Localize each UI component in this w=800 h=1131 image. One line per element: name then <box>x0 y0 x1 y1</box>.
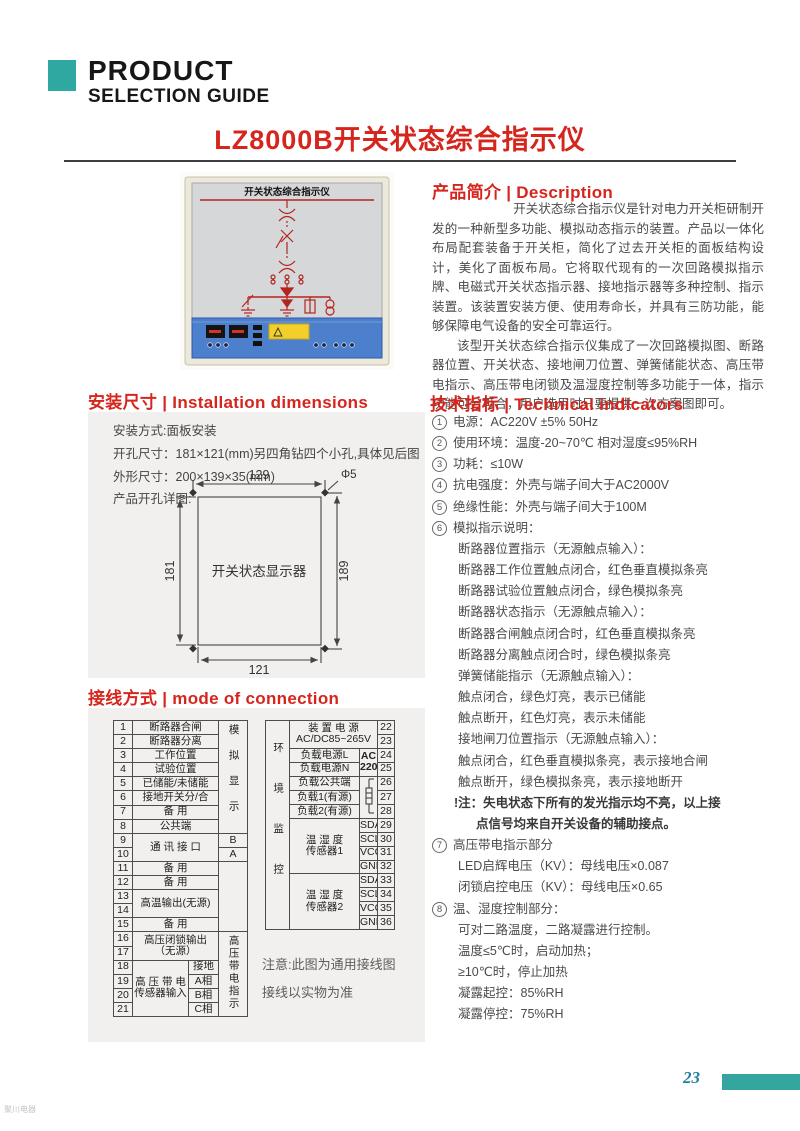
tech-line: 触点闭合，红色垂直模拟条亮，表示接地合闸 <box>430 751 770 772</box>
terminal-num: 30 <box>378 832 395 846</box>
wiring-note-1: 注意:此图为通用接线图 <box>262 954 396 973</box>
dim-left: 181 <box>163 561 177 582</box>
terminal-num: 1 <box>114 721 133 735</box>
circled-number: 5 <box>432 500 447 515</box>
catalog-page: PRODUCT SELECTION GUIDE LZ8000B开关状态综合指示仪… <box>0 0 800 1131</box>
section-heading-connection: 接线方式 | mode of connection <box>88 684 339 709</box>
terminal-num: 36 <box>378 916 395 930</box>
dim-hole: Φ5 <box>341 469 357 481</box>
tech-line: 6模拟指示说明： <box>430 518 770 539</box>
phase-label: A相 <box>189 974 219 988</box>
tech-line: LED启辉电压（KV）：母线电压×0.087 <box>430 856 770 877</box>
terminal-num: 2 <box>114 735 133 749</box>
terminal-num: 31 <box>378 846 395 860</box>
sensor-pin: SDA <box>360 874 378 888</box>
circled-number: 3 <box>432 457 447 472</box>
tech-line-text: 抗电强度：外壳与端子间大于AC2000V <box>453 478 669 492</box>
terminal-num: 13 <box>114 890 133 904</box>
terminal-label: 负载电源L <box>290 748 360 762</box>
tech-line-text: 断路器工作位置触点闭合，红色垂直模拟条亮 <box>458 563 708 577</box>
terminal-num: 3 <box>114 749 133 763</box>
description-body: 开关状态综合指示仪是针对电力开关柜研制开发的一种新型多功能、模拟动态指示的装置。… <box>432 200 764 415</box>
cutout-center-label: 开关状态显示器 <box>212 564 307 579</box>
terminal-num: 32 <box>378 860 395 874</box>
terminal-label: 通 讯 接 口 <box>133 833 219 861</box>
terminal-num: 22 <box>378 721 395 735</box>
tech-line-text: 断路器合闸触点闭合时，红色垂直模拟条亮 <box>458 627 696 641</box>
tech-line-text: 凝露停控：75%RH <box>458 1007 564 1021</box>
tech-line-text: LED启辉电压（KV）：母线电压×0.087 <box>458 859 669 873</box>
tech-line: 断路器试验位置触点闭合，绿色模拟条亮 <box>430 581 770 602</box>
terminal-num: 29 <box>378 818 395 832</box>
terminal-num: 4 <box>114 763 133 777</box>
tech-line: 凝露起控：85%RH <box>430 983 770 1004</box>
terminal-num: 9 <box>114 833 133 847</box>
tech-line: 断路器状态指示（无源触点输入）： <box>430 602 770 623</box>
device-panel: 开关状态综合指示仪 <box>184 176 390 366</box>
tech-line: 5绝缘性能：外壳与端子间大于100M <box>430 497 770 518</box>
tech-line-text: 触点闭合，红色垂直模拟条亮，表示接地合闸 <box>458 754 708 768</box>
terminal-num: 6 <box>114 791 133 805</box>
device-button <box>253 333 262 338</box>
tech-line-text: 断路器位置指示（无源触点输入）： <box>458 542 652 556</box>
terminal-label: 温 湿 度传感器2 <box>290 874 360 930</box>
install-mode-line: 安装方式:面板安装 <box>113 420 216 439</box>
brand-text: PRODUCT SELECTION GUIDE <box>88 56 270 107</box>
comm-pin-b: B <box>219 833 248 847</box>
tech-line-text: 触点断开，红色灯亮，表示未储能 <box>458 711 646 725</box>
terminal-num: 18 <box>114 960 133 974</box>
product-photo: 开关状态综合指示仪 <box>180 172 394 370</box>
technical-list: 1电源：AC220V ±5% 50Hz 2使用环境：温度-20~70℃ 相对湿度… <box>430 412 770 1026</box>
tech-line: 3功耗：≤10W <box>430 454 770 475</box>
terminal-label: 装 置 电 源AC/DC85~265V <box>290 721 378 749</box>
terminal-num: 7 <box>114 805 133 819</box>
circled-number: 2 <box>432 436 447 451</box>
terminal-num: 28 <box>378 804 395 818</box>
sensor-pin: SDA <box>360 818 378 832</box>
footer-bar <box>722 1074 800 1090</box>
device-button <box>253 341 262 346</box>
device-button <box>253 325 262 330</box>
tech-line: 4抗电强度：外壳与端子间大于AC2000V <box>430 475 770 496</box>
tech-line-text: ≥10℃时，停止加热 <box>458 965 568 979</box>
terminal-num: 12 <box>114 876 133 890</box>
tech-line-text: 功耗：≤10W <box>453 457 523 471</box>
terminal-num: 8 <box>114 819 133 833</box>
wiring-note-2: 接线以实物为准 <box>262 982 353 1001</box>
tech-line: 弹簧储能指示（无源触点输入）： <box>430 666 770 687</box>
terminal-label: 备 用 <box>133 918 219 932</box>
tech-line-text: 闭锁启控电压（KV）：母线电压×0.65 <box>458 880 663 894</box>
terminal-label: 试验位置 <box>133 763 219 777</box>
coil-icon <box>362 777 376 815</box>
cutout-size-line: 开孔尺寸：181×121(mm)另四角钻四个小孔,具体见后图 <box>113 443 420 462</box>
tech-line-text: !注：失电状态下所有的发光指示均不亮，以上接 <box>454 796 721 810</box>
terminal-label: 备 用 <box>133 876 219 890</box>
installation-box: 安装方式:面板安装 开孔尺寸：181×121(mm)另四角钻四个小孔,具体见后图… <box>88 412 425 678</box>
tech-line: 温度≤5℃时，启动加热； <box>430 941 770 962</box>
phase-label: C相 <box>189 1002 219 1016</box>
terminal-num: 25 <box>378 762 395 776</box>
page-number: 23 <box>683 1068 700 1088</box>
terminal-label: 负载电源N <box>290 762 360 776</box>
sensor-pin: SCL <box>360 832 378 846</box>
brand-product: PRODUCT <box>88 56 270 86</box>
sensor-pin: VCC <box>360 902 378 916</box>
tech-line-text: 模拟指示说明： <box>453 521 541 535</box>
terminal-label: 公共端 <box>133 819 219 833</box>
terminal-num: 33 <box>378 874 395 888</box>
tech-line: 断路器位置指示（无源触点输入）： <box>430 539 770 560</box>
terminal-num: 20 <box>114 988 133 1002</box>
terminal-num: 17 <box>114 946 133 960</box>
tech-line-text: 断路器试验位置触点闭合，绿色模拟条亮 <box>458 584 683 598</box>
dim-right: 189 <box>337 561 351 582</box>
page-title: LZ8000B开关状态综合指示仪 <box>0 118 800 157</box>
tech-line: 触点闭合，绿色灯亮，表示已储能 <box>430 687 770 708</box>
tech-line-text: 温度≤5℃时，启动加热； <box>458 944 598 958</box>
tech-line: 1电源：AC220V ±5% 50Hz <box>430 412 770 433</box>
tech-line: 闭锁启控电压（KV）：母线电压×0.65 <box>430 877 770 898</box>
terminal-label: 备 用 <box>133 805 219 819</box>
circled-number: 8 <box>432 902 447 917</box>
terminal-label: 断路器分离 <box>133 735 219 749</box>
tech-line: 断路器分离触点闭合时，绿色模拟条亮 <box>430 645 770 666</box>
coil-symbol-cell <box>360 776 378 818</box>
terminal-num: 34 <box>378 888 395 902</box>
device-panel-title: 开关状态综合指示仪 <box>244 186 330 198</box>
phase-label: B相 <box>189 988 219 1002</box>
terminal-label: 接地开关分/合 <box>133 791 219 805</box>
tech-line-text: 温、湿度控制部分： <box>453 902 566 916</box>
tech-line: 8温、湿度控制部分： <box>430 899 770 920</box>
terminal-num: 10 <box>114 847 133 861</box>
terminal-label: 高温输出(无源) <box>133 890 219 918</box>
terminal-num: 21 <box>114 1002 133 1016</box>
tech-line-text: 触点闭合，绿色灯亮，表示已储能 <box>458 690 646 704</box>
circled-number: 7 <box>432 838 447 853</box>
comm-pin-a: A <box>219 847 248 861</box>
tech-line: 2使用环境：温度-20~70℃ 相对湿度≤95%RH <box>430 433 770 454</box>
tech-line-text: 点信号均来自开关设备的辅助接点。 <box>476 817 676 831</box>
tech-line-text: 使用环境：温度-20~70℃ 相对湿度≤95%RH <box>453 436 697 450</box>
terminal-label: 负载2(有源) <box>290 804 360 818</box>
tech-line: 断路器合闸触点闭合时，红色垂直模拟条亮 <box>430 624 770 645</box>
tech-line: !注：失电状态下所有的发光指示均不亮，以上接 <box>430 793 770 814</box>
tech-line: 凝露停控：75%RH <box>430 1004 770 1025</box>
terminal-label: 高 压 带 电传感器输入 <box>133 960 189 1016</box>
terminal-num: 23 <box>378 734 395 748</box>
tech-line-text: 触点断开，绿色模拟条亮，表示接地断开 <box>458 775 683 789</box>
terminal-num: 27 <box>378 790 395 804</box>
terminal-num: 14 <box>114 904 133 918</box>
ac-supply-label: AC220V <box>360 748 378 776</box>
tech-line: 触点断开，红色灯亮，表示未储能 <box>430 708 770 729</box>
terminal-label: 备 用 <box>133 861 219 875</box>
terminal-label: 负载公共端 <box>290 776 360 790</box>
tech-line: 可对二路温度，二路凝露进行控制。 <box>430 920 770 941</box>
terminal-num: 26 <box>378 776 395 790</box>
terminal-label: 断路器合闸 <box>133 721 219 735</box>
tech-line-text: 可对二路温度，二路凝露进行控制。 <box>458 923 658 937</box>
tech-line: 触点断开，绿色模拟条亮，表示接地断开 <box>430 772 770 793</box>
tech-line-text: 高压带电指示部分 <box>453 838 553 852</box>
terminal-num: 5 <box>114 777 133 791</box>
tech-line: ≥10℃时，停止加热 <box>430 962 770 983</box>
sensor-pin: GND <box>360 916 378 930</box>
terminal-label: 高压闭锁输出（无源） <box>133 932 219 960</box>
dim-bottom: 121 <box>249 663 270 677</box>
terminal-num: 24 <box>378 748 395 762</box>
phase-label: 接地 <box>189 960 219 974</box>
tech-line-text: 电源：AC220V ±5% 50Hz <box>453 415 598 429</box>
terminal-num: 16 <box>114 932 133 946</box>
tech-line: 7高压带电指示部分 <box>430 835 770 856</box>
group-label-hv: 高压带电指示 <box>219 932 248 1017</box>
group-label-empty <box>219 861 248 931</box>
terminal-table-right: 环境监控装 置 电 源AC/DC85~265V22 23 负载电源LAC220V… <box>265 720 395 930</box>
warning-sticker-icon <box>269 324 309 339</box>
terminal-num: 35 <box>378 902 395 916</box>
brand: PRODUCT SELECTION GUIDE <box>48 56 270 107</box>
terminal-table-left: 1断路器合闸模拟显示 2断路器分离 3工作位置 4试验位置 5已储能/未储能 6… <box>113 720 248 1017</box>
sensor-pin: GND <box>360 860 378 874</box>
terminal-label: 负载1(有源) <box>290 790 360 804</box>
brand-mark-icon <box>48 60 76 91</box>
connection-box: 1断路器合闸模拟显示 2断路器分离 3工作位置 4试验位置 5已储能/未储能 6… <box>88 708 425 1042</box>
title-rule <box>64 160 736 162</box>
dim-top: 129 <box>249 468 270 482</box>
sensor-pin: SCL <box>360 888 378 902</box>
tech-line-text: 凝露起控：85%RH <box>458 986 564 1000</box>
tech-line-text: 弹簧储能指示（无源触点输入）： <box>458 669 639 683</box>
terminal-num: 15 <box>114 918 133 932</box>
tech-line-text: 断路器分离触点闭合时，绿色模拟条亮 <box>458 648 671 662</box>
tech-line: 接地闸刀位置指示（无源触点输入）： <box>430 729 770 750</box>
description-paragraph: 开关状态综合指示仪是针对电力开关柜研制开发的一种新型多功能、模拟动态指示的装置。… <box>432 200 764 337</box>
terminal-num: 11 <box>114 861 133 875</box>
tech-line: 断路器工作位置触点闭合，红色垂直模拟条亮 <box>430 560 770 581</box>
tech-line-text: 断路器状态指示（无源触点输入）： <box>458 605 652 619</box>
sensor-pin: VCC <box>360 846 378 860</box>
circled-number: 4 <box>432 478 447 493</box>
circled-number: 6 <box>432 521 447 536</box>
group-label-analog: 模拟显示 <box>219 721 248 834</box>
terminal-num: 19 <box>114 974 133 988</box>
terminal-label: 温 湿 度传感器1 <box>290 818 360 874</box>
tech-line-text: 绝缘性能：外壳与端子间大于100M <box>453 500 647 514</box>
circled-number: 1 <box>432 415 447 430</box>
section-heading-installation: 安装尺寸 | Installation dimensions <box>88 388 368 413</box>
watermark: 聚川电器 <box>4 1104 36 1115</box>
group-label-environment: 环境监控 <box>266 721 290 930</box>
terminal-label: 已储能/未储能 <box>133 777 219 791</box>
brand-subtitle: SELECTION GUIDE <box>88 86 270 107</box>
dimension-diagram: 129 Φ5 181 189 121 开关状态显示器 <box>149 466 369 681</box>
terminal-label: 工作位置 <box>133 749 219 763</box>
tech-line: 点信号均来自开关设备的辅助接点。 <box>430 814 770 835</box>
tech-line-text: 接地闸刀位置指示（无源触点输入）： <box>458 732 664 746</box>
